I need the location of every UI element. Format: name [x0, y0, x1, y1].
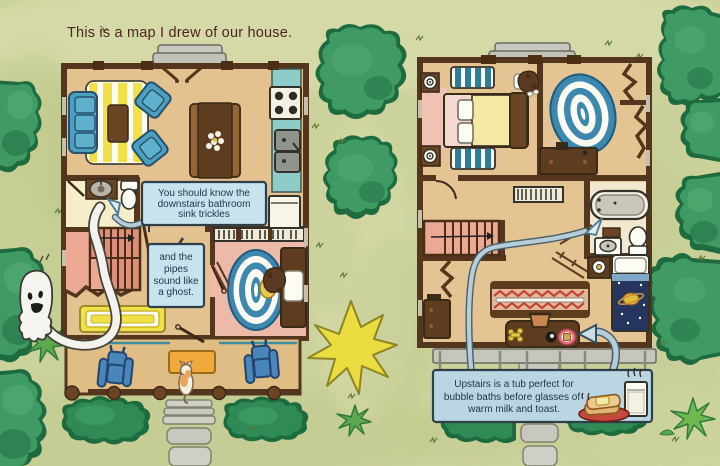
svg-text:and the: and the [159, 252, 193, 263]
svg-text:You should know the: You should know the [158, 188, 250, 199]
svg-text:pipes: pipes [164, 264, 188, 275]
svg-text:warm milk and toast.: warm milk and toast. [467, 404, 560, 415]
svg-text:This is a map I drew of our ho: This is a map I drew of our house. [67, 25, 292, 41]
svg-text:Upstairs is a tub perfect for: Upstairs is a tub perfect for [454, 379, 574, 390]
svg-text:bubble baths before glasses of: bubble baths before glasses of [444, 392, 580, 403]
svg-text:a ghost.: a ghost. [158, 287, 194, 298]
svg-text:sound like: sound like [153, 276, 198, 287]
svg-text:sink trickles: sink trickles [178, 209, 230, 220]
